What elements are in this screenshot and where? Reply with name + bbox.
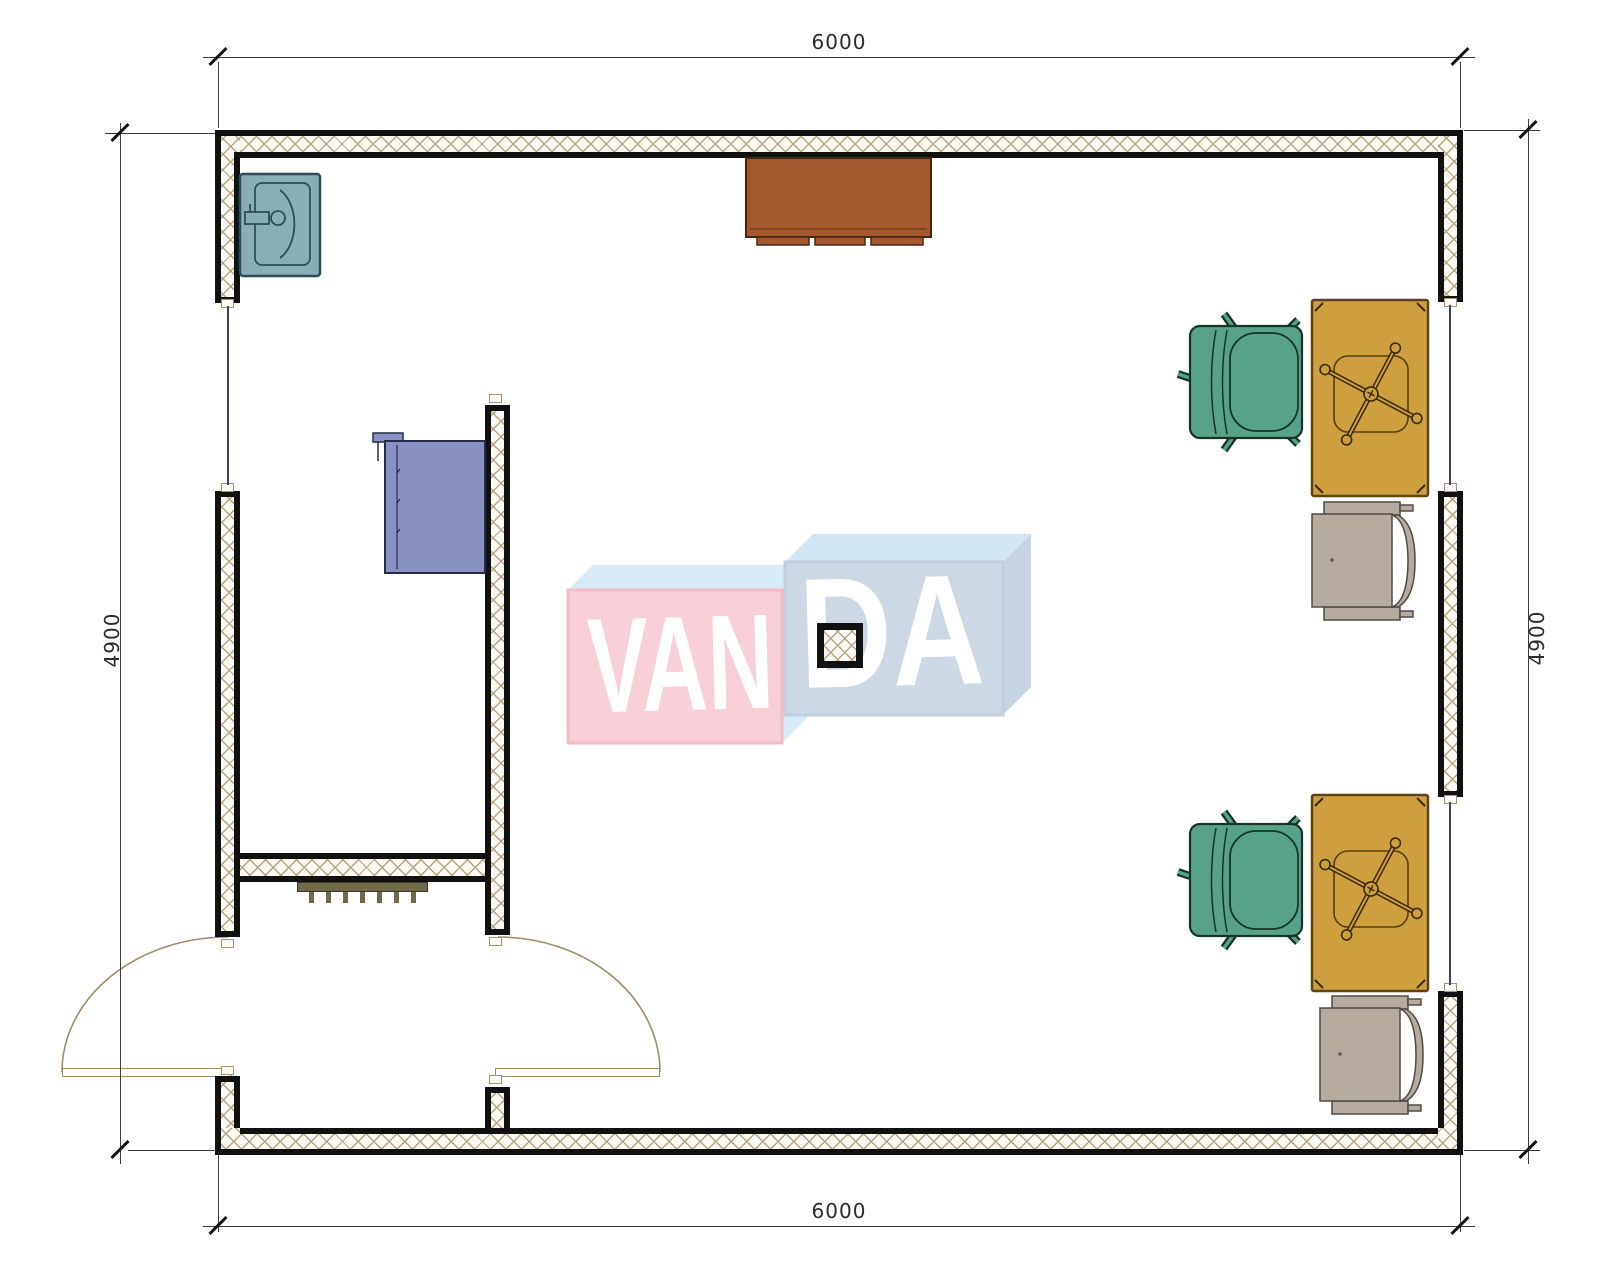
side-chair-2 <box>1320 996 1423 1114</box>
dimension-label-left: 4900 <box>100 590 124 690</box>
extension-line <box>1460 1155 1461 1232</box>
dimension-label-bottom: 6000 <box>789 1199 889 1223</box>
dimension-label-right: 4900 <box>1525 588 1549 688</box>
office-chair-1 <box>1178 314 1302 450</box>
wardrobe <box>373 433 485 573</box>
office-chair-2 <box>1178 812 1302 948</box>
dimension-label-top: 6000 <box>789 30 889 54</box>
desk-2 <box>1294 795 1448 991</box>
furniture-layer <box>0 0 1600 1280</box>
dimension-line-bottom <box>203 1226 1475 1227</box>
extension-line <box>218 1155 219 1232</box>
extension-line <box>128 1150 216 1151</box>
counter <box>746 158 931 245</box>
dimension-line-top <box>203 57 1475 58</box>
floor-plan-canvas: VAN DA <box>0 0 1600 1280</box>
desk-1 <box>1294 300 1448 496</box>
extension-line <box>218 62 219 128</box>
extension-line <box>105 133 215 134</box>
extension-line <box>1460 62 1461 128</box>
sink <box>240 174 320 276</box>
column <box>817 623 863 668</box>
side-chair-1 <box>1312 502 1415 620</box>
